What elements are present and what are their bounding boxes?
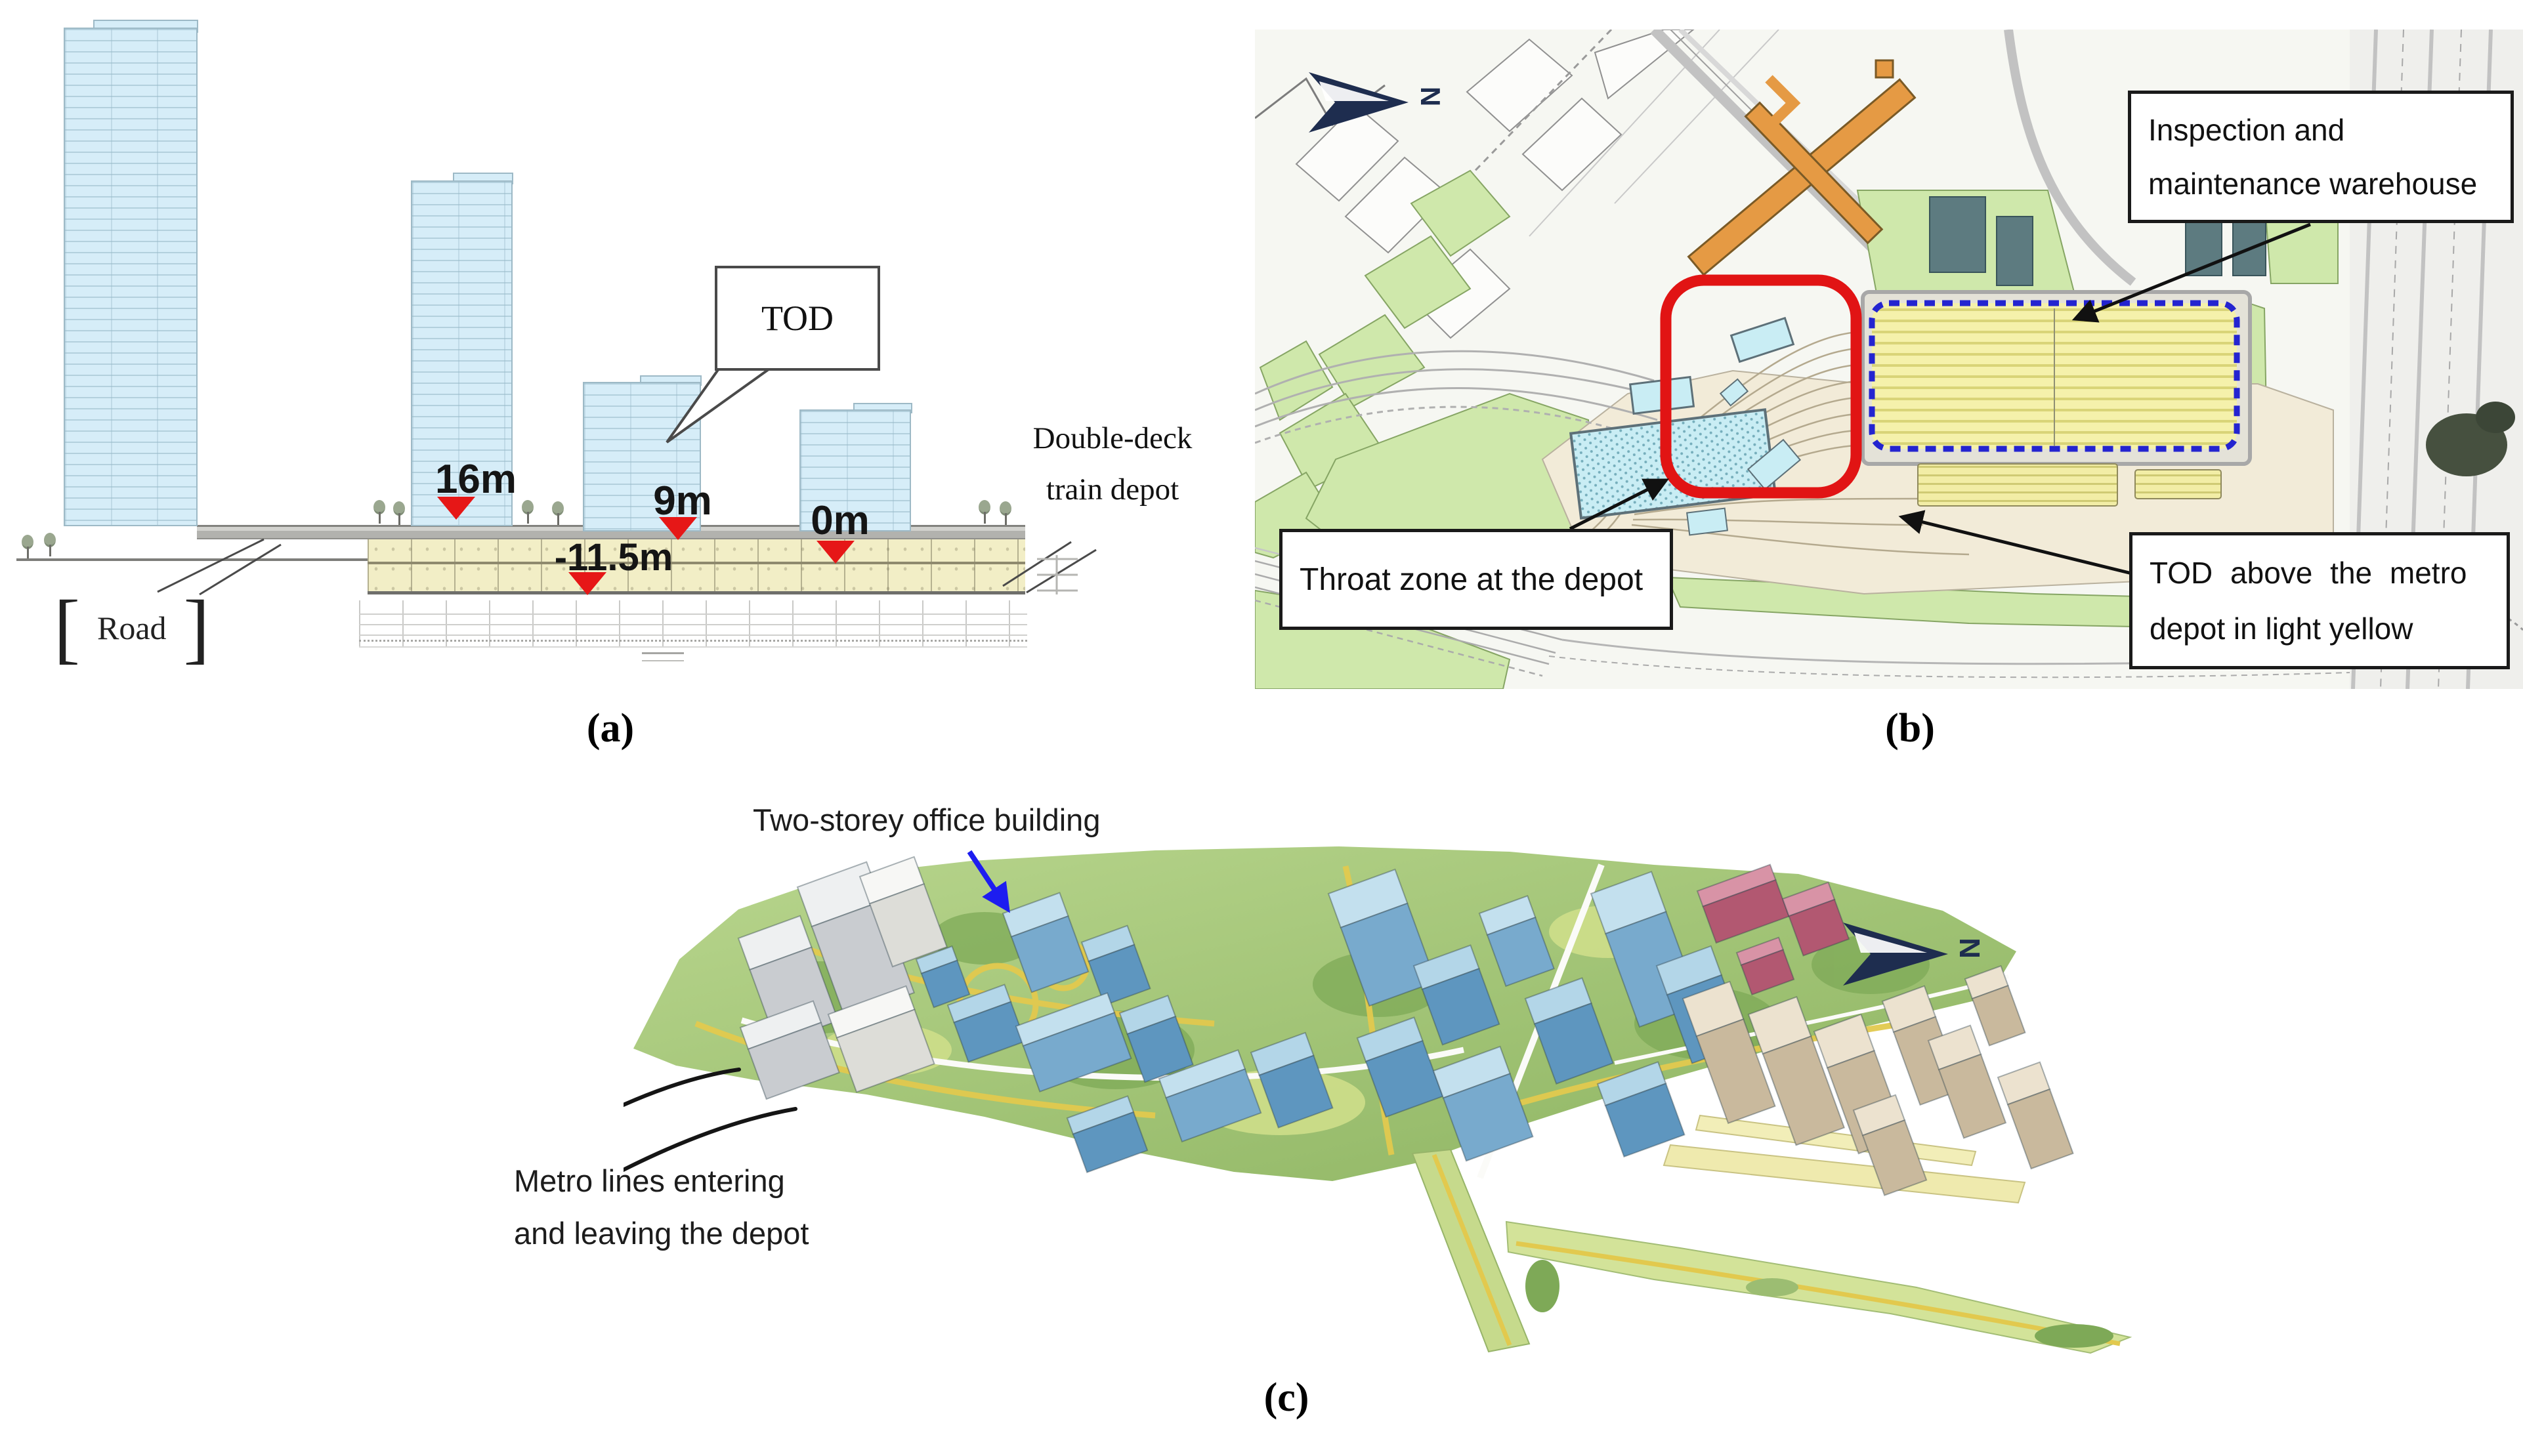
depot-leader-line [1003,542,1071,586]
tail-green-blob [2035,1324,2113,1348]
depot-leader-line [1027,550,1096,593]
north-letter: N [1414,87,1446,106]
elevation-label-neg-11-5m: -11.5m [522,535,706,579]
metro-lines-label-line2: and leaving the depot [514,1215,809,1251]
warehouse-label-line1: Inspection and [2131,112,2511,148]
right-bracket-icon: ] [184,595,210,661]
tod-map-label-line2: depot in light yellow [2132,611,2507,646]
caption-b: (b) [1831,705,1989,752]
office-building-label: Two-storey office building [753,802,1100,838]
elevation-label-0m: 0m [784,497,896,544]
north-letter: N [1953,938,1985,959]
figure-canvas: 16m 9m 0m -11.5m TOD Double-deck train d… [0,0,2523,1456]
tod-building [2135,470,2221,499]
tod-callout-box: TOD [715,266,880,371]
tod-map-label-box: TOD above the metro depot in light yello… [2129,532,2510,669]
throat-zone-label: Throat zone at the depot [1283,562,1670,598]
elevation-marker-icon [437,497,475,520]
throat-zone-label-box: Throat zone at the depot [1279,529,1673,630]
panel-a-cross-section: 16m 9m 0m -11.5m TOD Double-deck train d… [0,0,1260,735]
double-deck-depot-label-line2: train depot [1011,465,1214,516]
tod-callout-label: TOD [761,298,834,339]
double-deck-depot-label: Double-deck train depot [1011,413,1214,515]
metro-lines-label-line1: Metro lines entering [514,1163,785,1199]
tod-callout-tail [667,366,773,442]
metro-line-curve [624,1070,739,1143]
warehouse-label-line2: maintenance warehouse [2131,166,2511,201]
road-label-text: Road [80,609,184,647]
caption-c: (c) [1208,1375,1365,1421]
road-label: [ Road ] [54,589,209,667]
tail-path [1434,1155,1510,1345]
elevation-marker-icon [568,572,606,595]
elevation-marker-icon [816,541,855,564]
tail-green-blob [1525,1260,1559,1312]
tod-map-label-line1: TOD above the metro [2132,555,2507,591]
panel-b-site-plan: N Inspection and maintenance warehouse T… [1255,30,2523,689]
caption-a: (a) [532,705,689,752]
double-deck-depot-label-line1: Double-deck [1011,413,1214,465]
tail-green-blob [1746,1278,1798,1297]
warehouse-label-box: Inspection and maintenance warehouse [2128,91,2514,223]
panel-c-rendering [624,814,2140,1358]
left-bracket-icon: [ [54,595,80,661]
elevation-label-16m: 16m [410,456,541,503]
tod-building [1918,464,2117,506]
